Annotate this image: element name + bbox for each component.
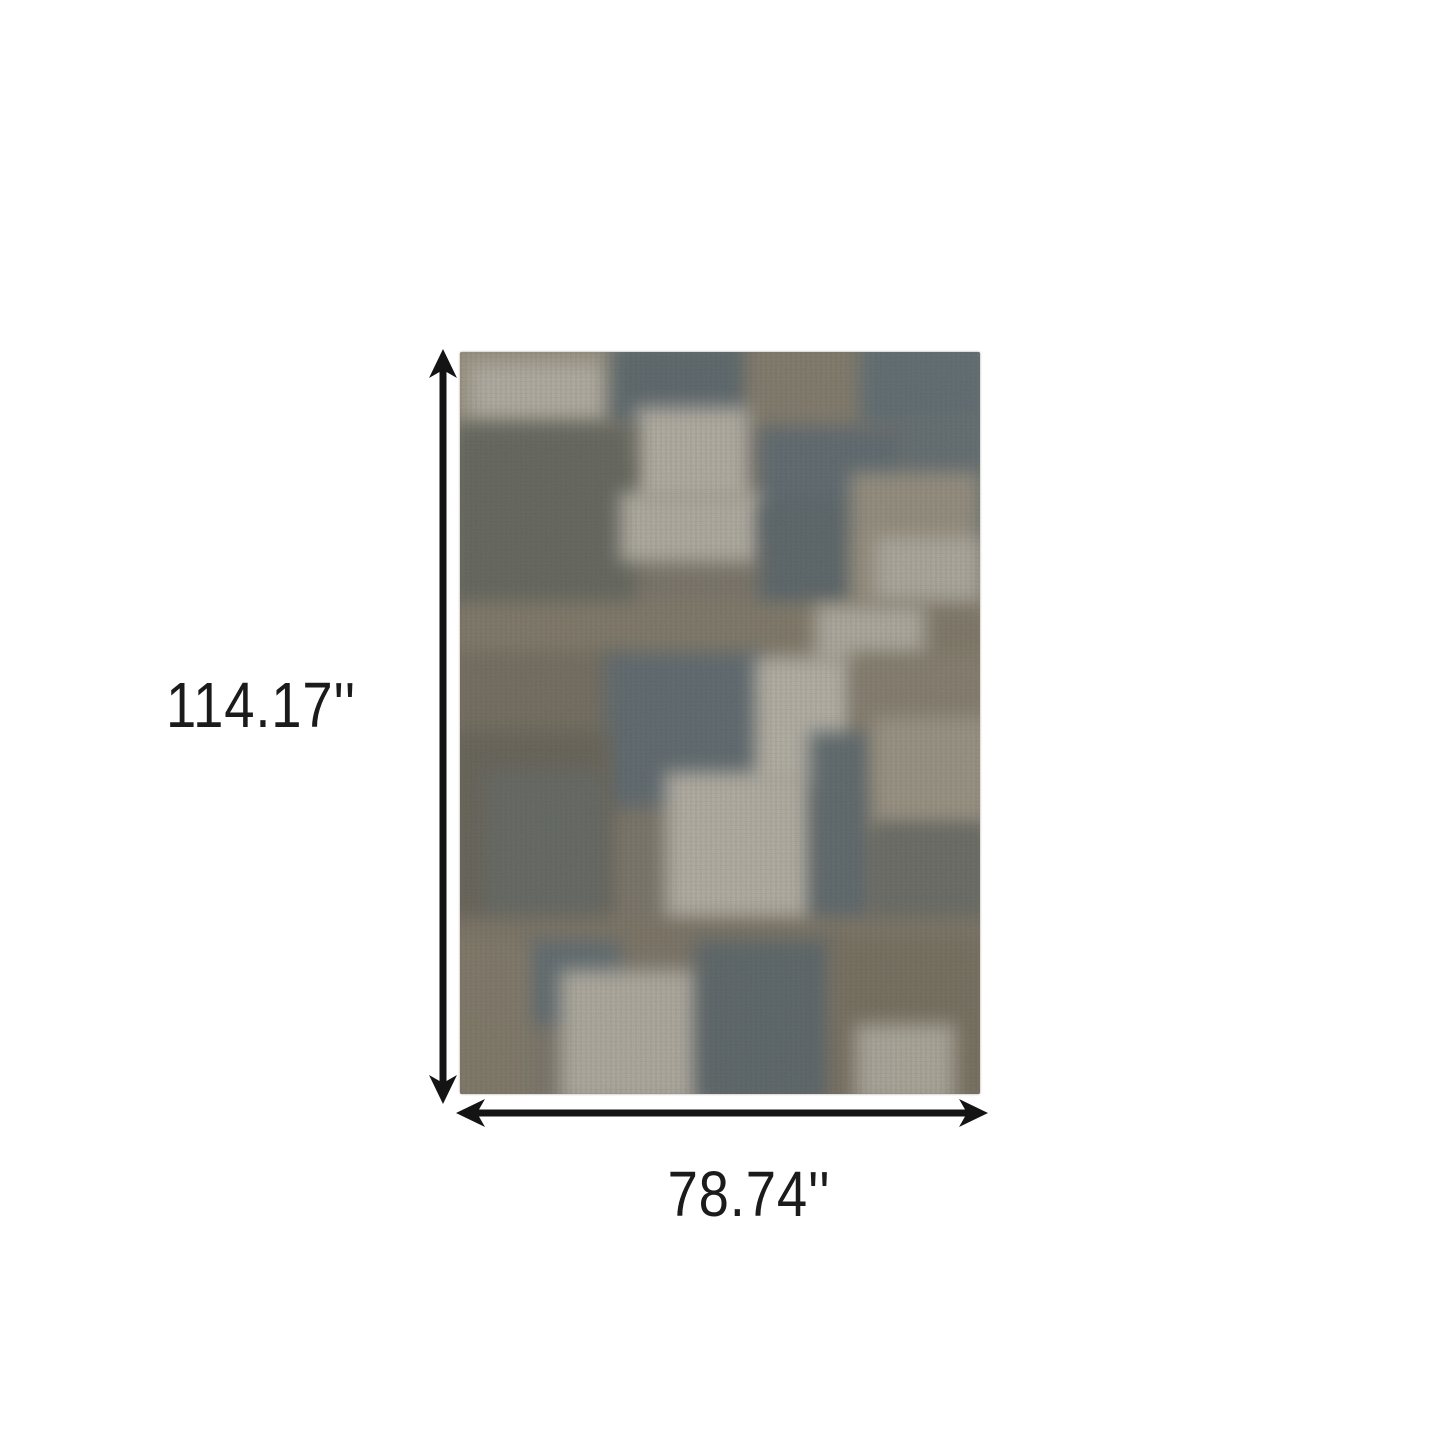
rug-image bbox=[460, 352, 980, 1094]
height-arrow bbox=[429, 349, 457, 1104]
width-dimension-label: 78.74'' bbox=[668, 1157, 831, 1231]
rug-grain-texture bbox=[460, 352, 980, 1094]
width-arrow bbox=[456, 1099, 988, 1127]
product-dimension-diagram: 114.17'' 78.74'' bbox=[0, 0, 1445, 1445]
height-dimension-label: 114.17'' bbox=[166, 668, 356, 742]
